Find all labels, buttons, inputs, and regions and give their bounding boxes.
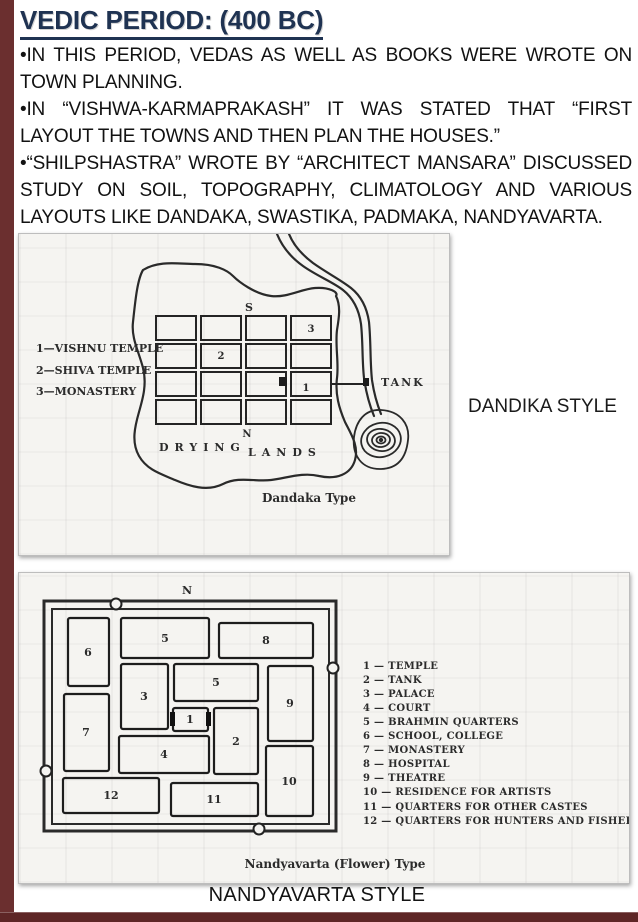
dandika-style-label: DANDIKA STYLE: [468, 396, 617, 418]
block-number-school: 6: [84, 646, 92, 659]
legend-item-vishnu-temple: 1—VISHNU TEMPLE: [36, 342, 163, 355]
block-number-temple: 1: [186, 713, 194, 726]
dandaka-diagram: 3 2 1 S N DRYING LANDS TANK 1—VISHNU TEM…: [19, 234, 449, 555]
compass-south-label: S: [245, 301, 253, 314]
grid-block: [291, 372, 331, 396]
bottom-accent-bar: [0, 912, 638, 922]
slide-body: •IN THIS PERIOD, VEDAS AS WELL AS BOOKS …: [20, 42, 632, 231]
gate-icon: [328, 663, 339, 674]
grid-block: [246, 344, 286, 368]
grid-block: [156, 400, 196, 424]
legend-item: 9 — THEATRE: [363, 773, 445, 784]
legend-item: 6 — SCHOOL, COLLEGE: [363, 731, 503, 742]
legend-item: 11 — QUARTERS FOR OTHER CASTES: [363, 802, 588, 813]
bullet-shilpshastra: •“SHILPSHASTRA” WROTE BY “ARCHITECT MANS…: [20, 150, 632, 231]
grid-block: [291, 344, 331, 368]
grid-block: [291, 400, 331, 424]
grid-block: [246, 316, 286, 340]
cell-number-vishnu-temple: 1: [303, 383, 310, 394]
town-grid: [156, 316, 331, 424]
left-accent-bar: [0, 0, 14, 922]
gate-icon: [254, 824, 265, 835]
slide-canvas: VEDIC PERIOD: (400 BC) •IN THIS PERIOD, …: [0, 0, 638, 922]
legend-item: 1 — TEMPLE: [363, 661, 438, 672]
nandyavarta-caption: Nandyavarta (Flower) Type: [245, 857, 426, 871]
block-number-hunters: 12: [103, 789, 118, 802]
legend-item: 4 — COURT: [363, 703, 431, 714]
grid-block: [156, 372, 196, 396]
temple-filled-mark: [279, 377, 287, 386]
tank-spiral-icon: [354, 410, 409, 469]
compass-north-label: N: [182, 584, 192, 597]
grid-block: [201, 316, 241, 340]
grid-block: [201, 372, 241, 396]
block-number-monastery: 7: [82, 726, 90, 739]
grid-block: [246, 400, 286, 424]
gate-mark: [363, 378, 369, 386]
block-number-court: 4: [160, 748, 168, 761]
cell-number-monastery: 3: [308, 324, 315, 335]
town-boundary-outline: [133, 263, 356, 488]
page-title: VEDIC PERIOD: (400 BC): [20, 5, 323, 40]
legend-item: 7 — MONASTERY: [363, 745, 465, 756]
block-number-brahmin: 5: [161, 632, 169, 645]
nandyavarta-diagram: N: [19, 573, 629, 883]
legend-item: 8 — HOSPITAL: [363, 759, 450, 770]
cell-number-shiva-temple: 2: [218, 351, 225, 362]
nandyavarta-legend: 1 — TEMPLE 2 — TANK 3 — PALACE 4 — COURT…: [363, 661, 629, 827]
legend-item: 2 — TANK: [363, 675, 422, 686]
nandyavarta-style-label: NANDYAVARTA STYLE: [14, 884, 620, 907]
block-number-castes: 11: [206, 793, 221, 806]
nandyavarta-figure: N: [18, 572, 630, 884]
legend-item: 10 — RESIDENCE FOR ARTISTS: [363, 787, 552, 798]
bullet-town-planning: •IN THIS PERIOD, VEDAS AS WELL AS BOOKS …: [20, 42, 632, 96]
grid-block: [156, 316, 196, 340]
block-number-brahmin-2: 5: [212, 676, 220, 689]
grid-block: [201, 400, 241, 424]
legend-item: 12 — QUARTERS FOR HUNTERS AND FISHER: [363, 816, 629, 827]
gate-icon: [111, 599, 122, 610]
legend-item-shiva-temple: 2—SHIVA TEMPLE: [36, 364, 151, 377]
tank-label: TANK: [381, 376, 425, 389]
temple-bracket-mark: [170, 712, 175, 726]
temple-bracket-mark: [206, 712, 211, 726]
dandaka-caption: Dandaka Type: [262, 491, 356, 505]
block-number-theatre: 9: [286, 697, 294, 710]
lands-label: LANDS: [248, 446, 322, 459]
bullet-vishwa-karmaprakash: •IN “VISHWA-KARMAPRAKASH” IT WAS STATED …: [20, 96, 632, 150]
legend-item: 5 — BRAHMIN QUARTERS: [363, 717, 519, 728]
block-number-artists: 10: [281, 775, 297, 788]
legend-item: 3 — PALACE: [363, 689, 435, 700]
drying-label: DRYING: [159, 441, 246, 454]
block-number-tank: 2: [232, 735, 240, 748]
block-number-palace: 3: [140, 690, 148, 703]
dandaka-figure: 3 2 1 S N DRYING LANDS TANK 1—VISHNU TEM…: [18, 233, 450, 556]
compass-north-label: N: [242, 429, 251, 440]
gate-icon: [41, 766, 52, 777]
block-number-hospital: 8: [262, 634, 270, 647]
legend-item-monastery: 3—MONASTERY: [36, 385, 136, 398]
